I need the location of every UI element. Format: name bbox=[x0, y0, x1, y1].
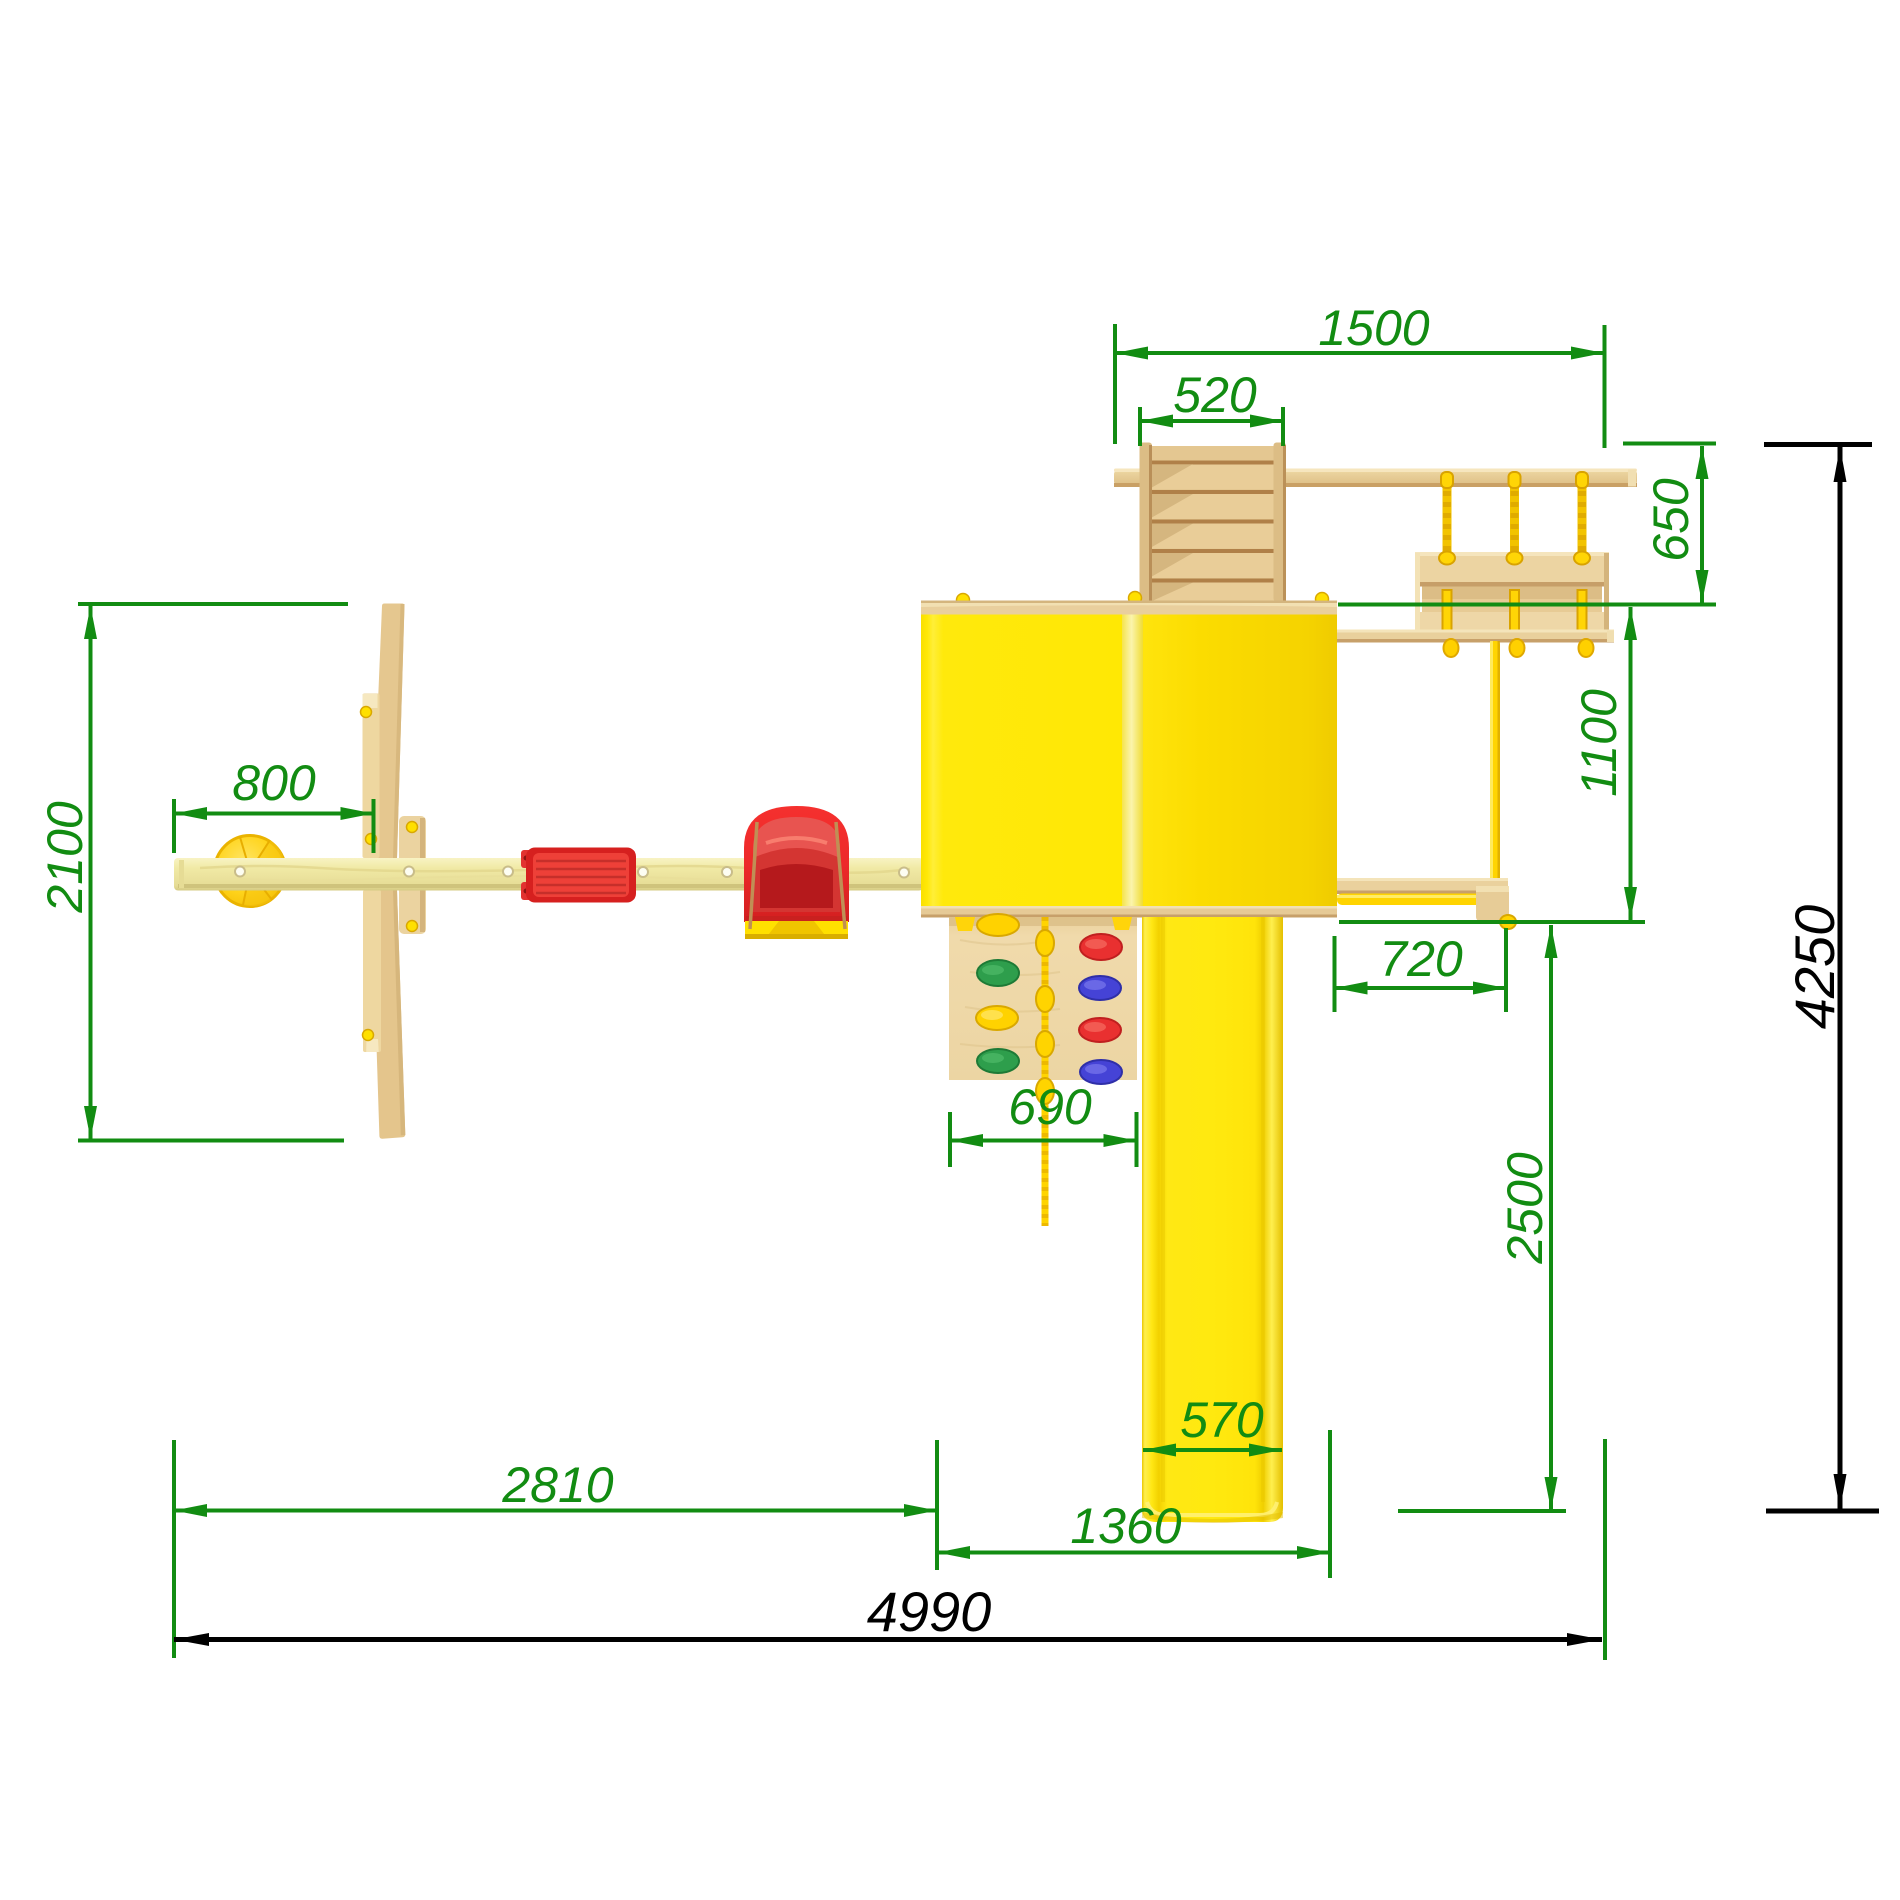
svg-text:690: 690 bbox=[1008, 1079, 1092, 1135]
svg-text:1100: 1100 bbox=[1571, 689, 1627, 797]
svg-text:570: 570 bbox=[1180, 1392, 1264, 1448]
svg-text:650: 650 bbox=[1643, 478, 1699, 562]
svg-text:2500: 2500 bbox=[1497, 1152, 1553, 1264]
svg-text:2100: 2100 bbox=[37, 801, 93, 913]
svg-text:1360: 1360 bbox=[1070, 1498, 1181, 1554]
svg-text:1500: 1500 bbox=[1318, 300, 1429, 356]
svg-text:4250: 4250 bbox=[1783, 905, 1846, 1030]
svg-text:2810: 2810 bbox=[501, 1457, 613, 1513]
svg-text:720: 720 bbox=[1379, 931, 1463, 987]
svg-text:800: 800 bbox=[232, 755, 316, 811]
svg-text:4990: 4990 bbox=[867, 1580, 992, 1643]
svg-text:520: 520 bbox=[1173, 367, 1257, 423]
